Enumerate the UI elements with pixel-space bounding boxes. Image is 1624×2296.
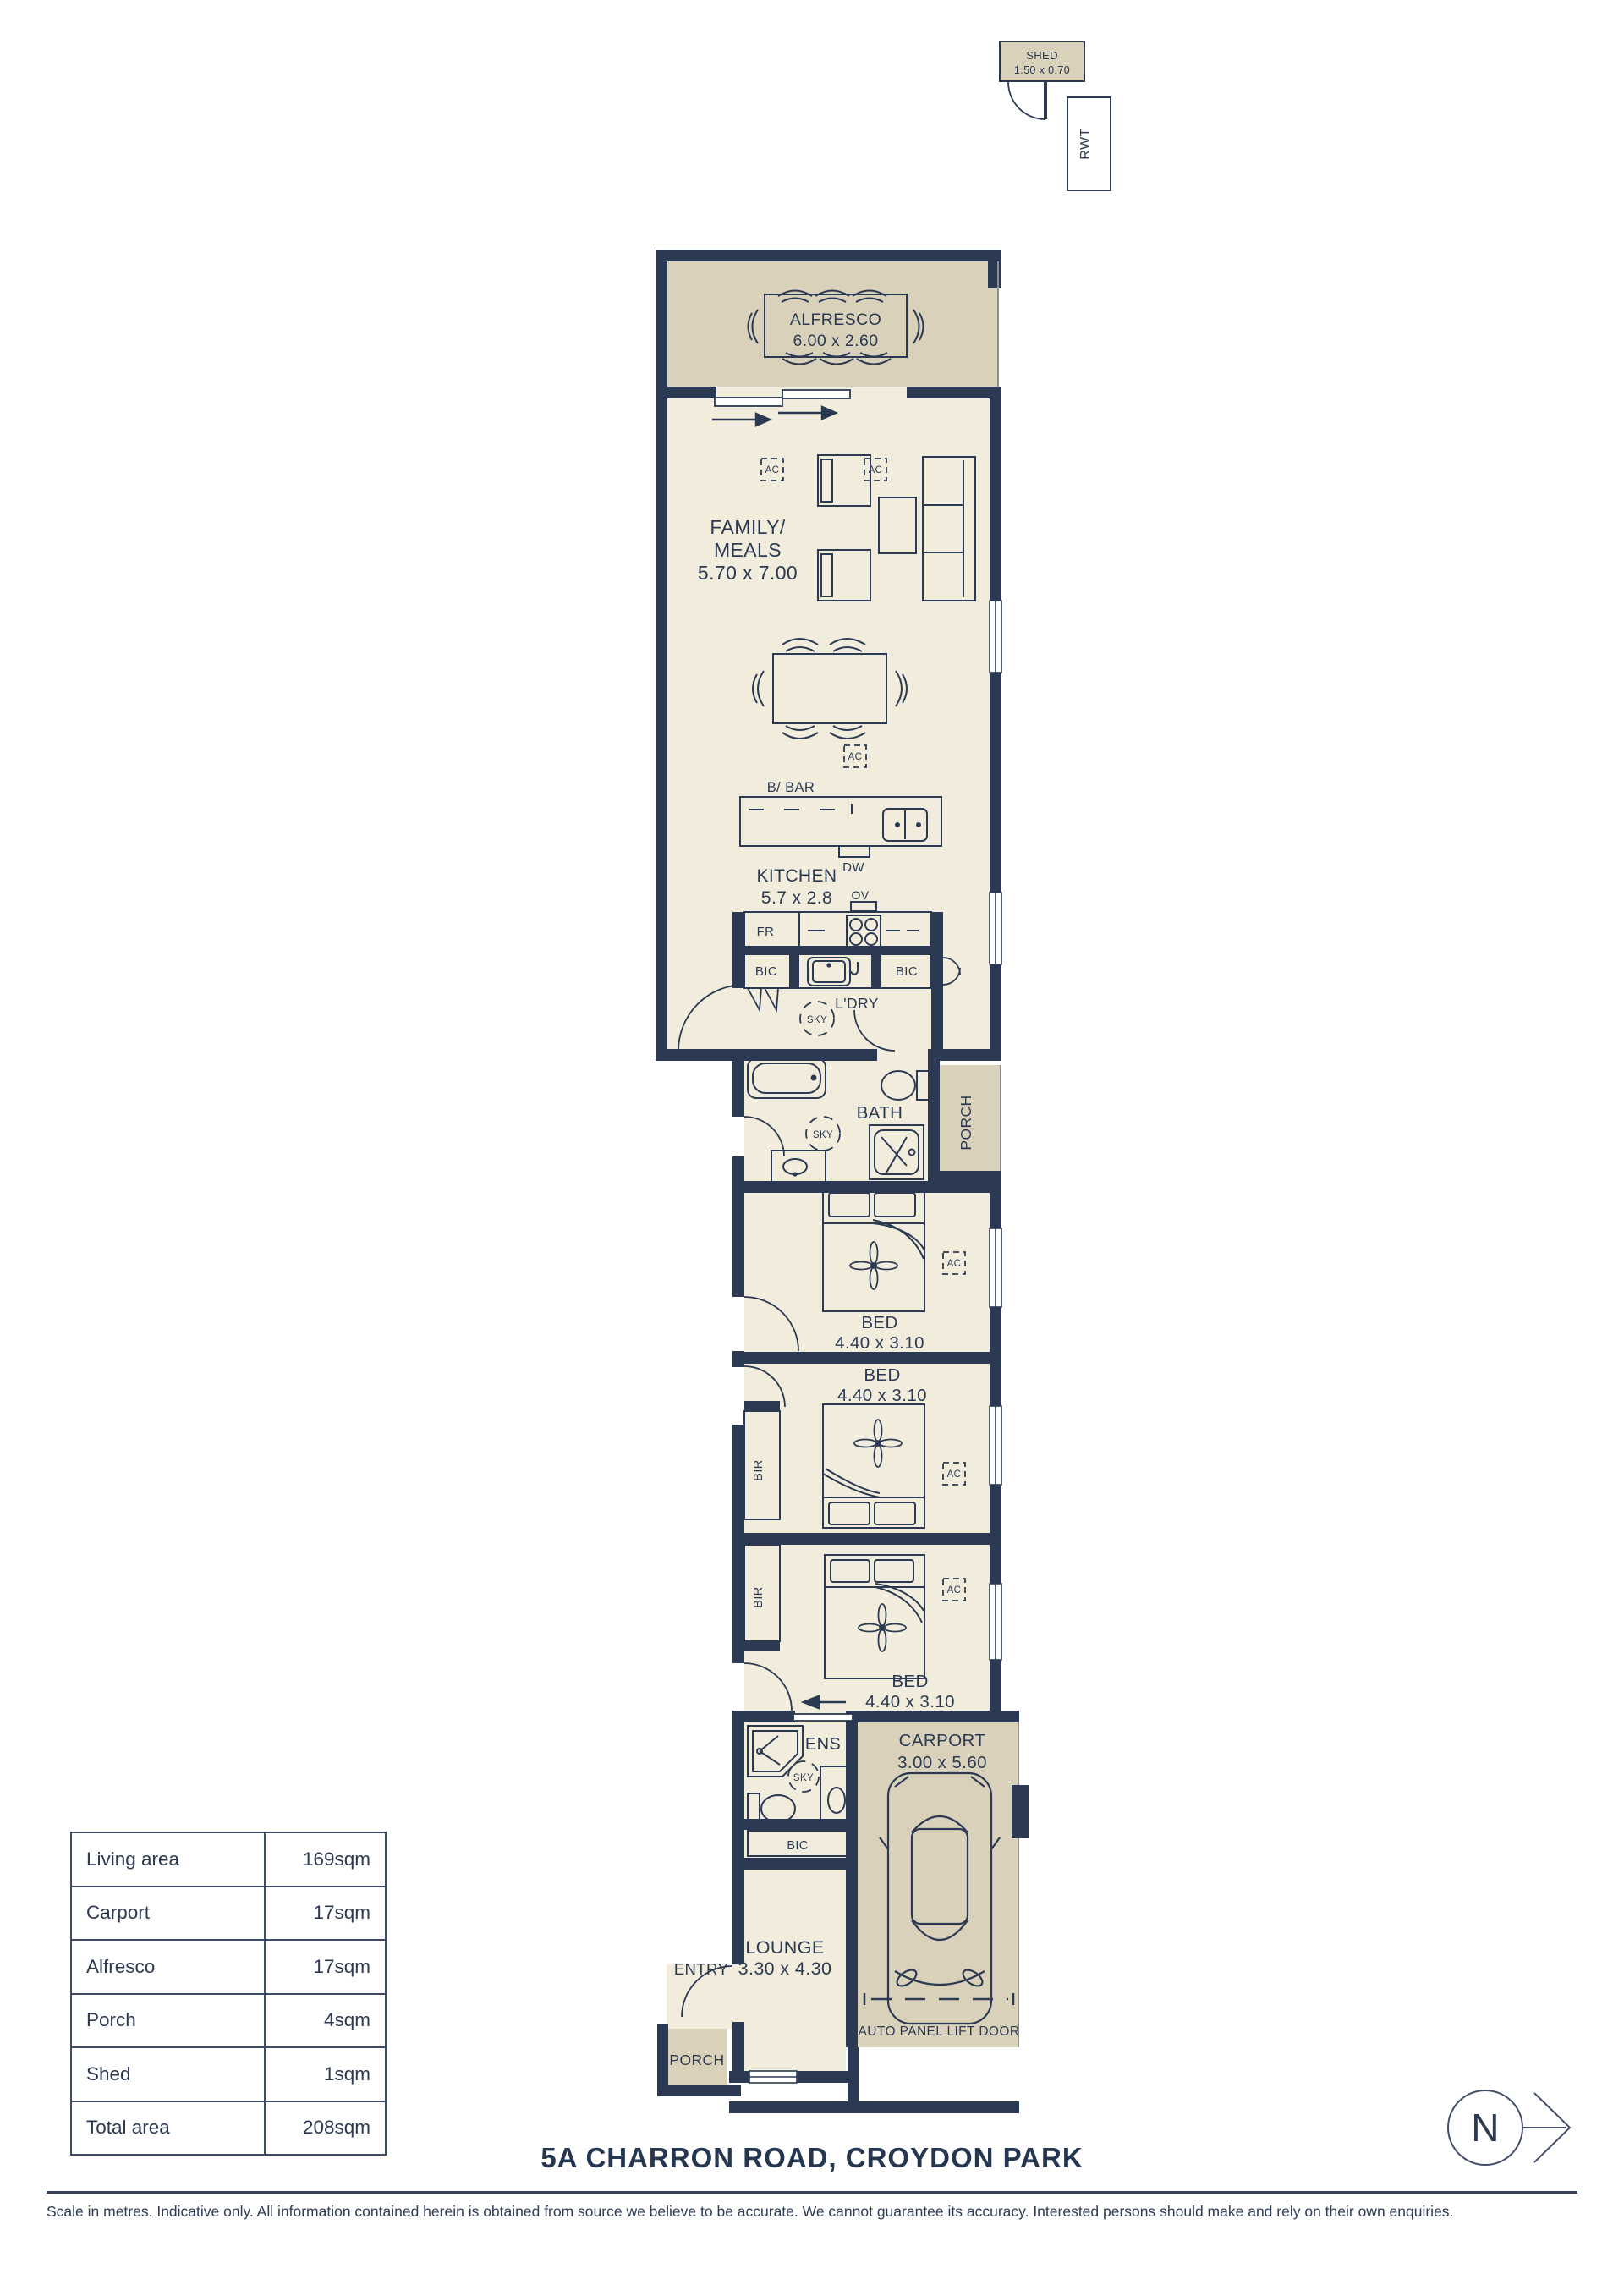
sliding-door-track (782, 390, 850, 398)
ac-label: AC (947, 1585, 962, 1596)
alfresco-label: ALFRESCO (790, 310, 881, 329)
ens-label: ENS (805, 1735, 841, 1754)
footer-divider (47, 2191, 1577, 2194)
window (749, 2071, 797, 2083)
shed-dims: 1.50 x 0.70 (1014, 64, 1070, 76)
window (990, 893, 1001, 964)
kitchen-dims: 5.7 x 2.8 (761, 888, 832, 908)
area-name: Living area (72, 1833, 266, 1886)
dw-label: DW (842, 860, 864, 875)
window (990, 1406, 1001, 1485)
disclaimer-text: Scale in metres. Indicative only. All in… (47, 2203, 1594, 2221)
fr-label: FR (757, 925, 775, 939)
table-row: Carport 17sqm (72, 1887, 385, 1942)
area-value: 17sqm (266, 1887, 385, 1940)
bir-label: BIR (752, 1459, 765, 1480)
family-dims: 5.70 x 7.00 (698, 562, 798, 584)
bed-label: BED (864, 1365, 900, 1385)
area-name: Porch (72, 1995, 266, 2047)
window (990, 1228, 1001, 1307)
ac-label: AC (869, 465, 883, 475)
area-name: Alfresco (72, 1941, 266, 1993)
alfresco-dims: 6.00 x 2.60 (793, 332, 879, 350)
lounge-dims: 3.30 x 4.30 (738, 1958, 832, 1979)
shed-door-arc (1008, 82, 1045, 119)
bbar-label: B/ BAR (767, 780, 815, 795)
area-value: 4sqm (266, 1995, 385, 2047)
area-name: Carport (72, 1887, 266, 1940)
lounge-label: LOUNGE (745, 1937, 824, 1958)
auto-door-label: AUTO PANEL LIFT DOOR (859, 2024, 1020, 2039)
ac-label: AC (765, 465, 780, 475)
ac-label: AC (947, 1259, 962, 1269)
table-row: Alfresco 17sqm (72, 1941, 385, 1995)
porch-label: PORCH (957, 1095, 974, 1150)
sliding-door-track (715, 398, 782, 406)
area-value: 1sqm (266, 2048, 385, 2101)
table-row: Porch 4sqm (72, 1995, 385, 2049)
bed-dims: 4.40 x 3.10 (837, 1386, 927, 1405)
bed-label: BED (861, 1313, 897, 1332)
property-address: 5A CHARRON ROAD, CROYDON PARK (0, 2142, 1624, 2174)
area-value: 169sqm (266, 1833, 385, 1886)
window (990, 601, 1001, 673)
areas-table: Living area 169sqm Carport 17sqm Alfresc… (70, 1832, 387, 2156)
porch-label: PORCH (669, 2052, 724, 2068)
table-row: Living area 169sqm (72, 1833, 385, 1887)
kitchen-label: KITCHEN (757, 866, 837, 886)
window (990, 1584, 1001, 1660)
rwt-label: RWT (1078, 128, 1093, 159)
bed-dims: 4.40 x 3.10 (835, 1333, 924, 1353)
bed-label: BED (892, 1672, 928, 1691)
family-label: MEALS (714, 539, 782, 561)
sky-label: SKY (813, 1130, 833, 1140)
bic-label: BIC (896, 964, 918, 979)
ac-label: AC (947, 1469, 962, 1480)
ov-label: OV (851, 888, 869, 902)
bic-label: BIC (787, 1839, 808, 1853)
floorplan-page: SHED 1.50 x 0.70 RWT ALFRESCO 6.00 x 2.6… (0, 0, 1624, 2296)
area-value: 17sqm (266, 1941, 385, 1993)
ldry-label: L'DRY (835, 995, 879, 1012)
area-name: Shed (72, 2048, 266, 2101)
bath-label: BATH (857, 1103, 903, 1123)
carport-label: CARPORT (899, 1731, 986, 1750)
table-row: Shed 1sqm (72, 2048, 385, 2102)
bic-label: BIC (755, 964, 777, 979)
entry-label: ENTRY (674, 1960, 728, 1978)
sky-label: SKY (793, 1773, 814, 1783)
carport-dims: 3.00 x 5.60 (897, 1753, 987, 1772)
bed-dims: 4.40 x 3.10 (865, 1692, 955, 1711)
family-label: FAMILY/ (710, 516, 785, 538)
cavity-door-track (793, 1714, 853, 1721)
ac-label: AC (848, 752, 863, 762)
bir-label: BIR (752, 1586, 765, 1607)
sky-label: SKY (807, 1015, 827, 1025)
shed-label: SHED (1026, 49, 1058, 62)
